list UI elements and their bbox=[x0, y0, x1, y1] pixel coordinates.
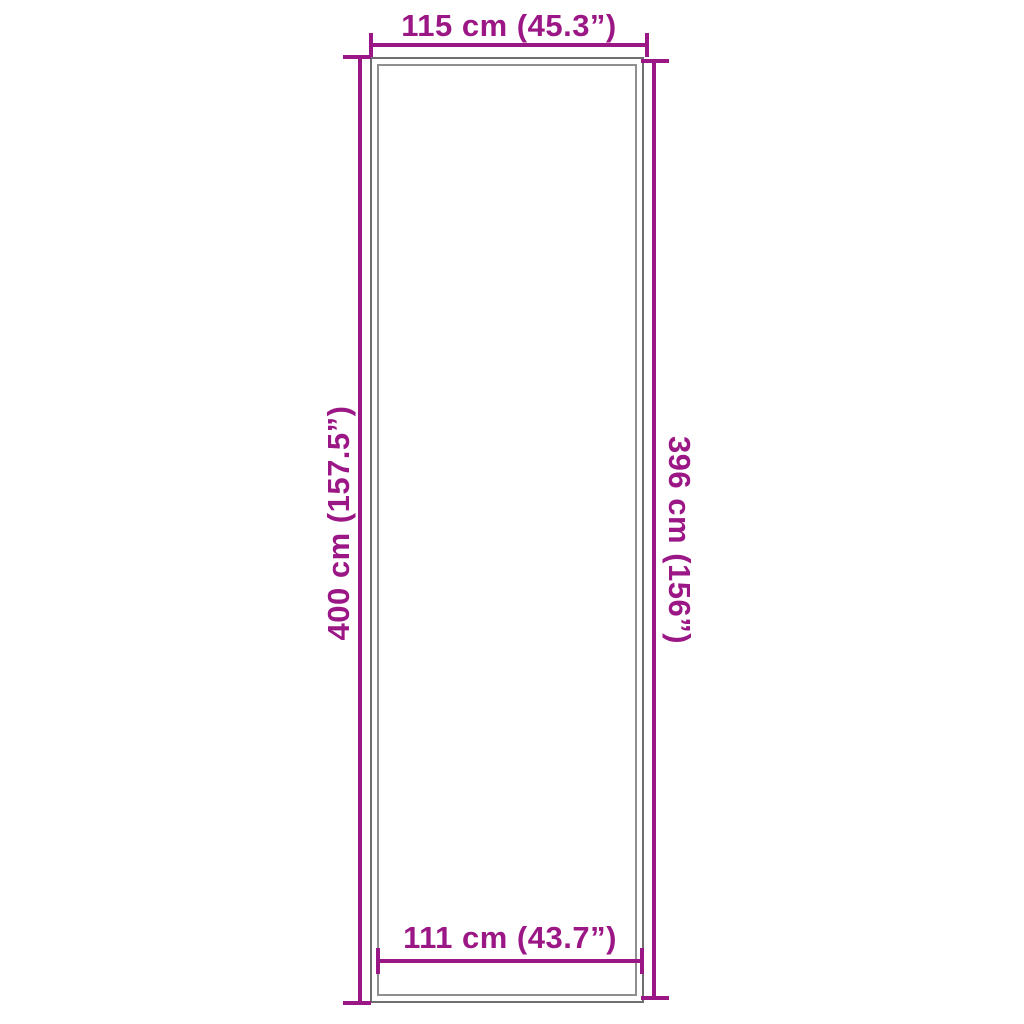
right-dimension-line bbox=[652, 60, 656, 1000]
top-dimension-tick-left bbox=[369, 33, 373, 57]
bottom-dimension-tick-left bbox=[376, 948, 380, 974]
left-dimension-label: 400 cm (157.5”) bbox=[321, 406, 357, 641]
left-dimension-tick-bottom bbox=[343, 1001, 371, 1005]
product-outline-outer bbox=[370, 57, 644, 1003]
dimension-diagram: 115 cm (45.3”) 400 cm (157.5”) 396 cm (1… bbox=[0, 0, 1024, 1024]
top-dimension-label: 115 cm (45.3”) bbox=[401, 8, 617, 44]
left-dimension-tick-top bbox=[343, 55, 371, 59]
right-dimension-tick-top bbox=[641, 59, 669, 63]
bottom-dimension-label: 111 cm (43.7”) bbox=[403, 920, 617, 956]
bottom-dimension-line bbox=[377, 959, 643, 963]
right-dimension-label: 396 cm (156”) bbox=[661, 436, 697, 644]
right-dimension-tick-bottom bbox=[641, 996, 669, 1000]
left-dimension-line bbox=[358, 57, 362, 1005]
bottom-dimension-tick-right bbox=[640, 948, 644, 974]
product-outline-inner bbox=[377, 64, 637, 996]
top-dimension-tick-right bbox=[645, 33, 649, 57]
